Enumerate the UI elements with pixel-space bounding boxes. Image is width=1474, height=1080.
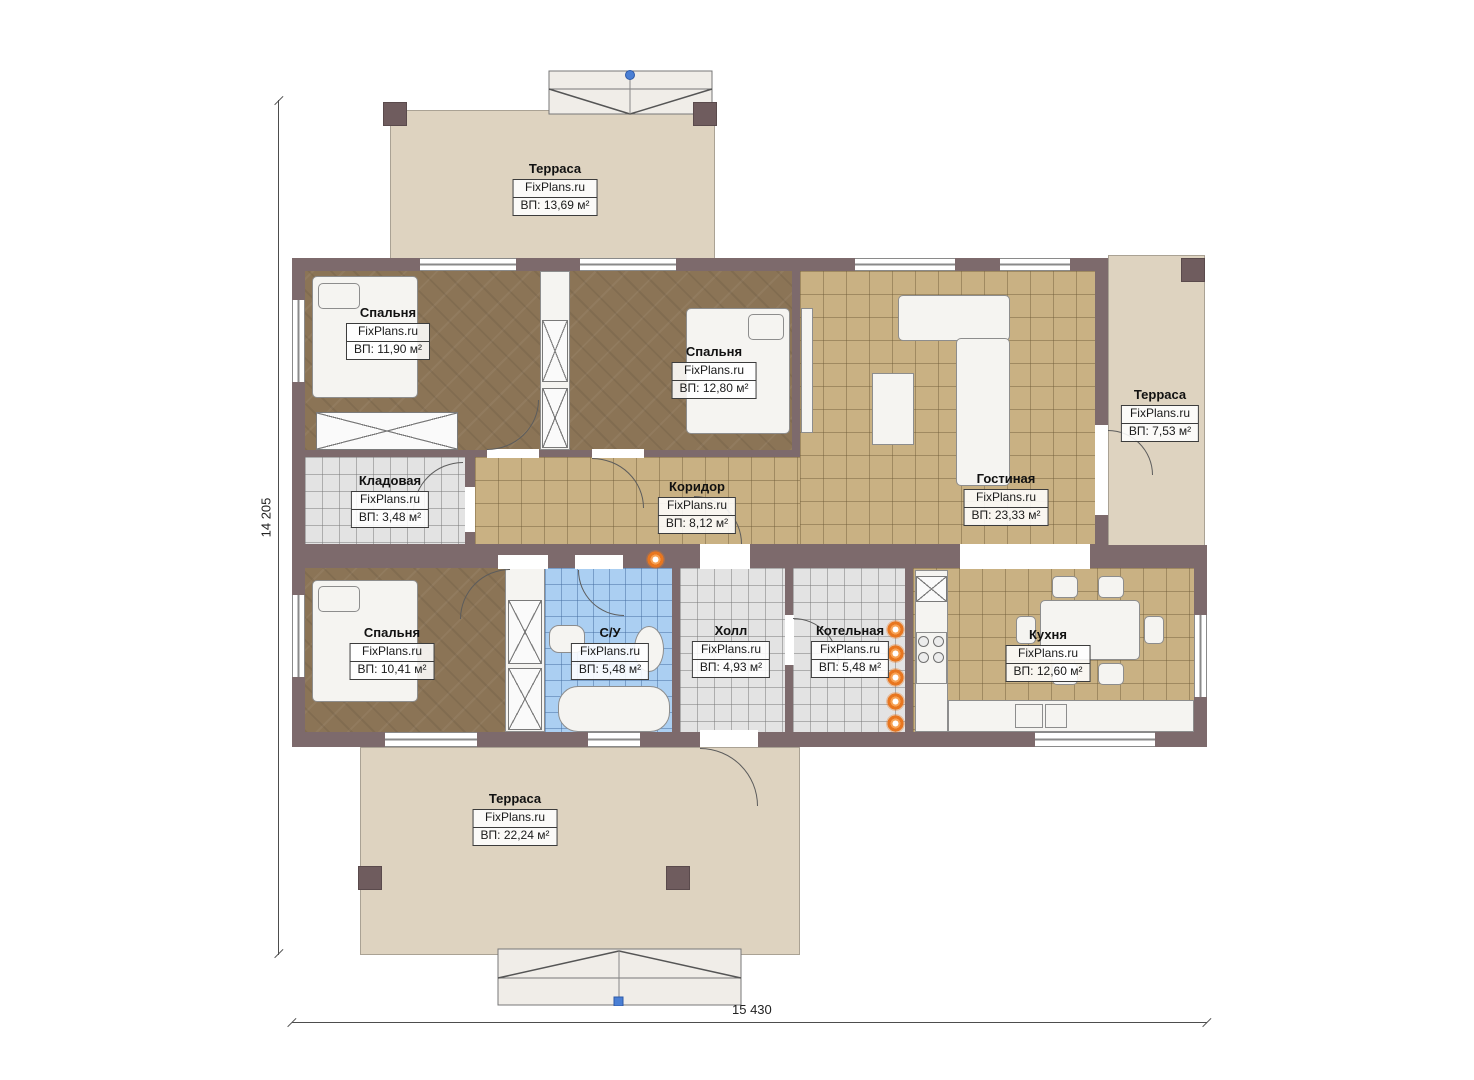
column	[1181, 258, 1205, 282]
room-label-bedroom-3: Спальня FixPlans.ru ВП: 10,41 м²	[350, 626, 435, 680]
brand-label: FixPlans.ru	[351, 491, 429, 510]
entry-marker-icon	[626, 71, 635, 80]
burner-icon	[918, 636, 929, 647]
window	[385, 732, 477, 747]
room-area: ВП: 23,33 м²	[964, 508, 1049, 526]
room-label-terrace-right: Терраса FixPlans.ru ВП: 7,53 м²	[1121, 388, 1199, 442]
room-name: Кухня	[1006, 628, 1091, 643]
room-name: Кладовая	[351, 474, 429, 489]
kitchen-counter	[948, 700, 1194, 732]
dimension-line-vertical	[278, 100, 279, 955]
sofa	[898, 295, 1010, 341]
door-opening	[498, 555, 548, 569]
pillow	[748, 314, 784, 340]
window	[292, 300, 305, 382]
door-opening	[465, 487, 475, 532]
kitchen-sink	[1045, 704, 1067, 728]
brand-label: FixPlans.ru	[692, 641, 770, 660]
room-label-hall: Холл FixPlans.ru ВП: 4,93 м²	[692, 624, 770, 678]
room-label-bedroom-2: Спальня FixPlans.ru ВП: 12,80 м²	[672, 345, 757, 399]
room-name: С/У	[571, 626, 649, 641]
door-opening	[960, 544, 1090, 569]
door-opening	[575, 555, 623, 569]
chair	[1052, 576, 1078, 598]
room-label-corridor: Коридор FixPlans.ru ВП: 8,12 м²	[658, 480, 736, 534]
floor-plan-canvas: Терраса FixPlans.ru ВП: 13,69 м² Спальня…	[0, 0, 1474, 1080]
room-name: Терраса	[513, 162, 598, 177]
room-area: ВП: 13,69 м²	[513, 198, 598, 216]
radiator-icon	[886, 714, 905, 733]
window	[292, 595, 305, 677]
door-opening	[487, 449, 539, 458]
column	[666, 866, 690, 890]
wardrobe	[508, 668, 542, 730]
room-area: ВП: 4,93 м²	[692, 660, 770, 678]
brand-label: FixPlans.ru	[473, 809, 558, 828]
wardrobe	[542, 320, 568, 382]
room-label-boiler-room: Котельная FixPlans.ru ВП: 5,48 м²	[811, 624, 889, 678]
dimension-line-horizontal	[292, 1022, 1207, 1023]
sofa	[956, 338, 1010, 486]
window	[580, 258, 676, 271]
room-area: ВП: 8,12 м²	[658, 516, 736, 534]
entrance-steps-top	[548, 70, 713, 115]
brand-label: FixPlans.ru	[1121, 405, 1199, 424]
room-name: Коридор	[658, 480, 736, 495]
bathtub	[558, 686, 670, 732]
tv-stand	[801, 308, 813, 433]
window	[1035, 732, 1155, 747]
radiator-icon	[886, 692, 905, 711]
room-name: Терраса	[473, 792, 558, 807]
room-name: Спальня	[350, 626, 435, 641]
door-opening	[700, 544, 750, 569]
room-label-terrace-top: Терраса FixPlans.ru ВП: 13,69 м²	[513, 162, 598, 216]
room-label-terrace-bottom: Терраса FixPlans.ru ВП: 22,24 м²	[473, 792, 558, 846]
brand-label: FixPlans.ru	[571, 643, 649, 662]
burner-icon	[918, 652, 929, 663]
radiator-icon	[646, 550, 665, 569]
window	[1000, 258, 1070, 271]
brand-label: FixPlans.ru	[350, 643, 435, 662]
room-name: Терраса	[1121, 388, 1199, 403]
wardrobe	[316, 412, 458, 450]
coffee-table	[872, 373, 914, 445]
room-area: ВП: 5,48 м²	[571, 662, 649, 680]
chair	[1144, 616, 1164, 644]
room-label-bedroom-1: Спальня FixPlans.ru ВП: 11,90 м²	[346, 306, 430, 360]
brand-label: FixPlans.ru	[964, 489, 1049, 508]
brand-label: FixPlans.ru	[513, 179, 598, 198]
brand-label: FixPlans.ru	[1006, 645, 1091, 664]
brand-label: FixPlans.ru	[672, 362, 757, 381]
room-area: ВП: 3,48 м²	[351, 510, 429, 528]
room-label-kitchen: Кухня FixPlans.ru ВП: 12,60 м²	[1006, 628, 1091, 682]
burner-icon	[933, 652, 944, 663]
room-name: Котельная	[811, 624, 889, 639]
brand-label: FixPlans.ru	[346, 323, 430, 342]
room-name: Гостиная	[964, 472, 1049, 487]
room-area: ВП: 12,60 м²	[1006, 664, 1091, 682]
brand-label: FixPlans.ru	[811, 641, 889, 660]
room-area: ВП: 11,90 м²	[346, 342, 430, 360]
brand-label: FixPlans.ru	[658, 497, 736, 516]
dimension-width-label: 15 430	[732, 1002, 772, 1017]
chair	[1098, 663, 1124, 685]
room-area: ВП: 22,24 м²	[473, 828, 558, 846]
room-name: Холл	[692, 624, 770, 639]
room-area: ВП: 10,41 м²	[350, 662, 435, 680]
column	[358, 866, 382, 890]
wardrobe	[508, 600, 542, 664]
pillow	[318, 586, 360, 612]
chair	[1098, 576, 1124, 598]
window	[1194, 615, 1207, 697]
window	[420, 258, 516, 271]
room-area: ВП: 12,80 м²	[672, 381, 757, 399]
wardrobe	[542, 388, 568, 448]
burner-icon	[933, 636, 944, 647]
door-opening	[700, 730, 758, 747]
room-label-bathroom: С/У FixPlans.ru ВП: 5,48 м²	[571, 626, 649, 680]
terrace-door-opening	[1095, 425, 1108, 515]
room-area: ВП: 7,53 м²	[1121, 424, 1199, 442]
column	[693, 102, 717, 126]
column	[383, 102, 407, 126]
entry-marker-icon	[614, 997, 623, 1006]
entrance-steps-bottom	[497, 948, 742, 1006]
kitchen-sink	[1015, 704, 1043, 728]
dimension-height-label: 14 205	[258, 498, 273, 538]
room-label-storage: Кладовая FixPlans.ru ВП: 3,48 м²	[351, 474, 429, 528]
room-name: Спальня	[672, 345, 757, 360]
appliance	[916, 576, 947, 602]
room-name: Спальня	[346, 306, 430, 321]
window	[588, 732, 640, 747]
window	[855, 258, 955, 271]
room-area: ВП: 5,48 м²	[811, 660, 889, 678]
door-opening	[592, 449, 644, 458]
room-label-living-room: Гостиная FixPlans.ru ВП: 23,33 м²	[964, 472, 1049, 526]
